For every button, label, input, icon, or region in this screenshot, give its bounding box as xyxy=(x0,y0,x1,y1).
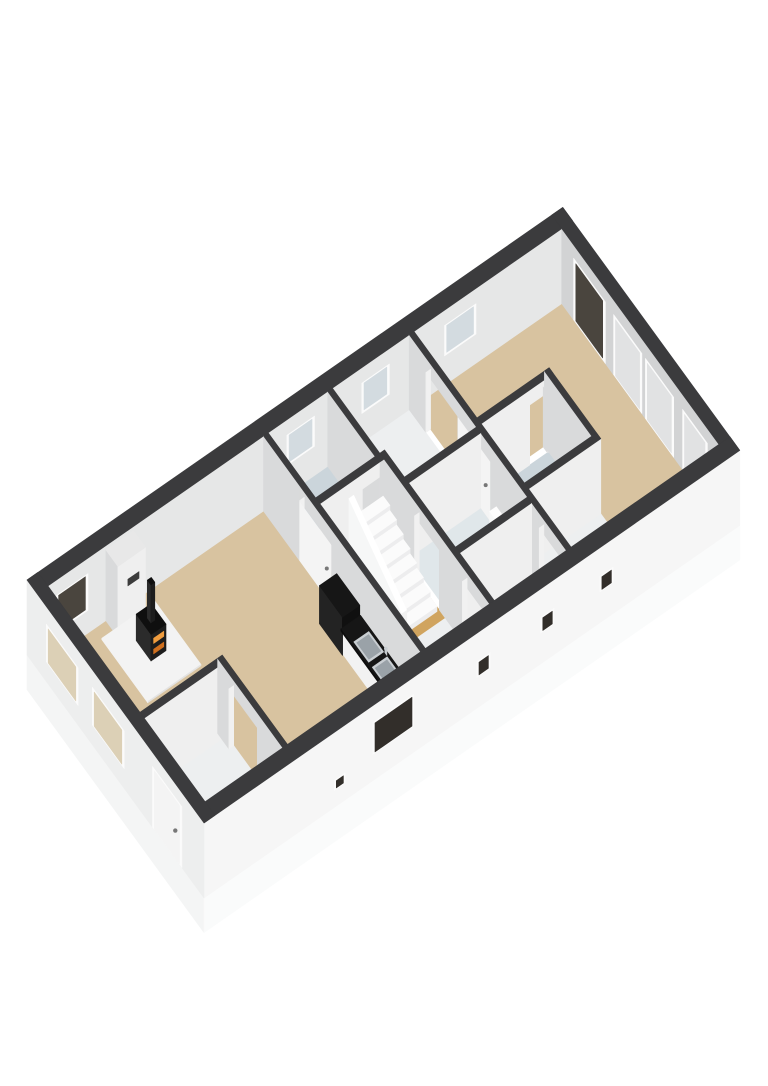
faucet-head xyxy=(384,647,388,651)
front-door-handle xyxy=(173,828,177,832)
stove-pipe-front xyxy=(151,583,155,623)
floorplan-3d-view xyxy=(0,0,768,1086)
living-door-handle xyxy=(325,567,329,571)
floorplan-image xyxy=(0,0,768,1086)
stove-pipe-side xyxy=(147,581,151,623)
entrance-opening-jamb xyxy=(229,686,234,749)
bedroom-door-handle xyxy=(484,483,488,487)
w2-door-jamb xyxy=(426,369,431,432)
